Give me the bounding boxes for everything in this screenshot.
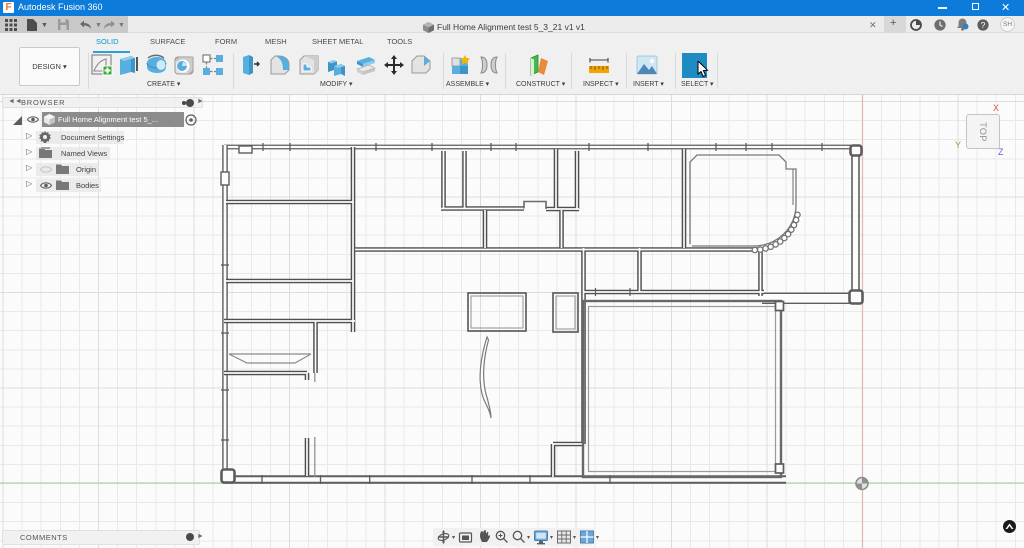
svg-text:▾: ▾	[573, 535, 576, 541]
svg-text:?: ?	[981, 20, 986, 30]
svg-text:▾: ▾	[452, 535, 455, 541]
svg-text:▾: ▾	[527, 535, 530, 541]
svg-text:▾: ▾	[596, 535, 599, 541]
svg-text:▾: ▾	[550, 535, 553, 541]
